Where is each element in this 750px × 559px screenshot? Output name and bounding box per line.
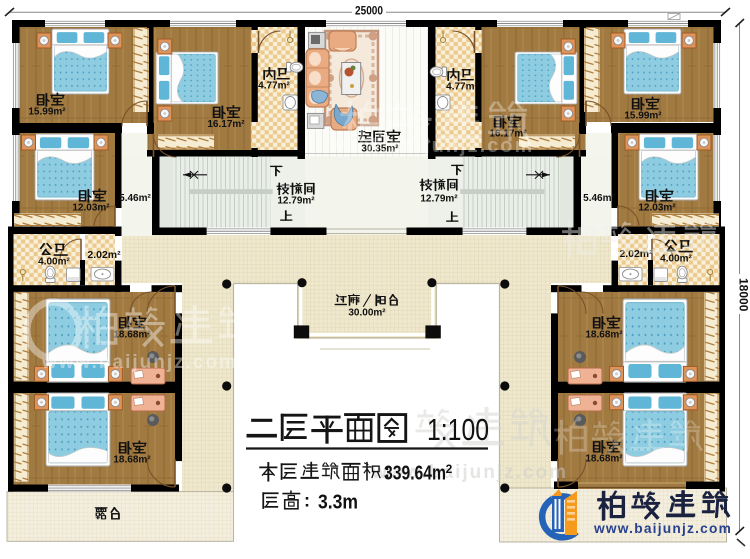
svg-text:4.77m²: 4.77m² xyxy=(446,82,478,93)
svg-text:18.68m²: 18.68m² xyxy=(585,330,623,341)
svg-text:4.00m²: 4.00m² xyxy=(660,254,692,265)
svg-text:www.baijunjz.com: www.baijunjz.com xyxy=(329,135,535,157)
svg-text:339.64m: 339.64m xyxy=(384,463,446,485)
svg-text:12.79m²: 12.79m² xyxy=(277,196,315,207)
svg-text:25000: 25000 xyxy=(355,6,383,18)
svg-text:2: 2 xyxy=(446,462,453,476)
svg-text:3.3m: 3.3m xyxy=(318,492,358,514)
svg-text:18000: 18000 xyxy=(737,278,750,312)
svg-text:18.68m²: 18.68m² xyxy=(113,330,151,341)
svg-text:www.baijunjz.com: www.baijunjz.com xyxy=(593,521,732,536)
svg-text:1:100: 1:100 xyxy=(427,412,489,447)
svg-text:15.99m²: 15.99m² xyxy=(624,111,662,122)
svg-text:18.68m²: 18.68m² xyxy=(585,454,623,465)
svg-text:2.02m²: 2.02m² xyxy=(87,249,121,261)
svg-text:4.00m²: 4.00m² xyxy=(38,257,70,268)
svg-text:www.baijunjz.com: www.baijunjz.com xyxy=(41,352,238,373)
svg-text:30.00m²: 30.00m² xyxy=(348,308,386,319)
svg-text:16.17m²: 16.17m² xyxy=(207,119,245,130)
svg-text::: : xyxy=(304,491,310,511)
svg-text:15.99m²: 15.99m² xyxy=(28,107,66,118)
svg-text:18.68m²: 18.68m² xyxy=(113,455,151,466)
svg-text:5.46m²: 5.46m² xyxy=(119,193,151,204)
svg-text:12.03m²: 12.03m² xyxy=(72,203,110,214)
svg-text:4.77m²: 4.77m² xyxy=(258,81,290,92)
svg-text:12.03m²: 12.03m² xyxy=(638,203,676,214)
svg-text:12.79m²: 12.79m² xyxy=(420,194,458,205)
svg-text:5.46m²: 5.46m² xyxy=(583,193,615,204)
